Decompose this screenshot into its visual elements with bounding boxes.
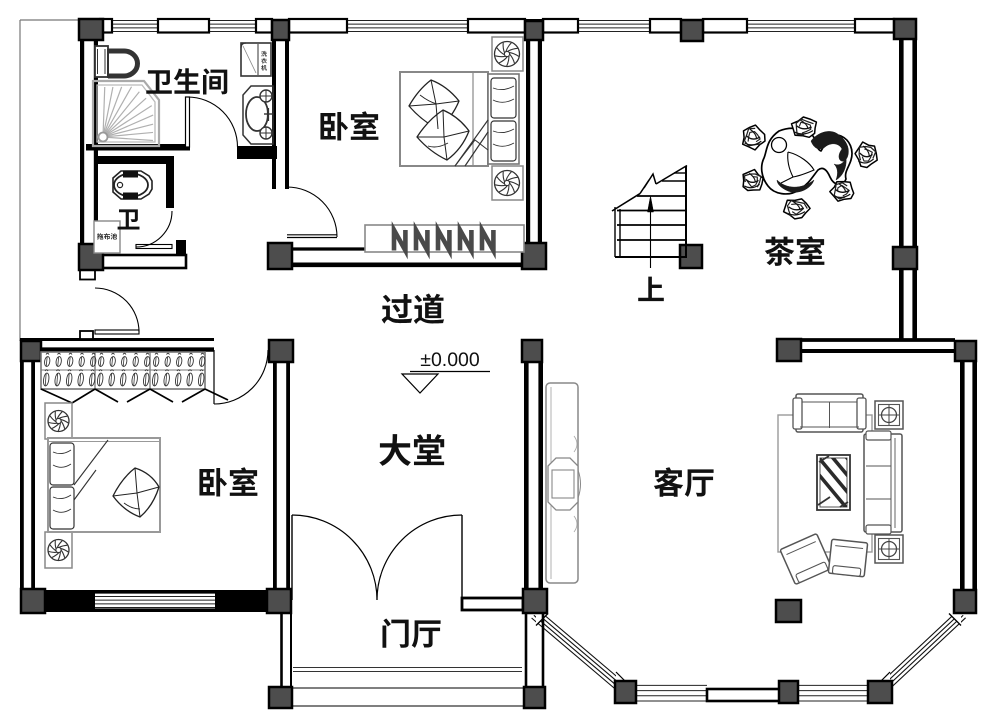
svg-text:±0.000: ±0.000 [420, 349, 480, 371]
